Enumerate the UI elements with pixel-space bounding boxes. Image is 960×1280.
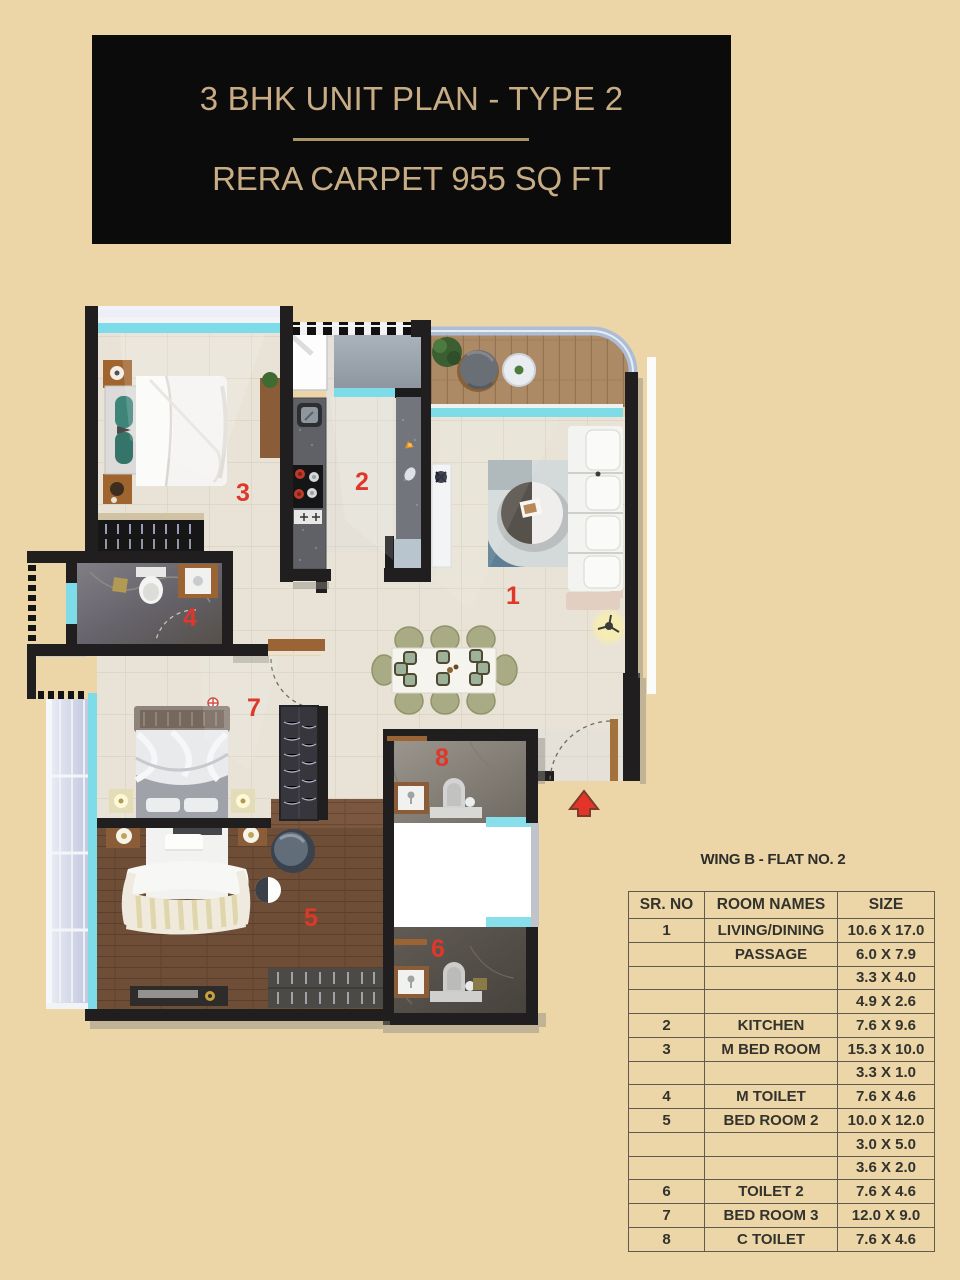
svg-text:7: 7 (247, 694, 261, 722)
svg-text:1: 1 (506, 582, 520, 610)
svg-text:6: 6 (431, 935, 445, 963)
svg-text:2: 2 (355, 468, 369, 496)
svg-text:8: 8 (435, 744, 449, 772)
svg-text:3: 3 (236, 479, 250, 507)
svg-text:4: 4 (183, 604, 197, 632)
svg-text:5: 5 (304, 904, 318, 932)
